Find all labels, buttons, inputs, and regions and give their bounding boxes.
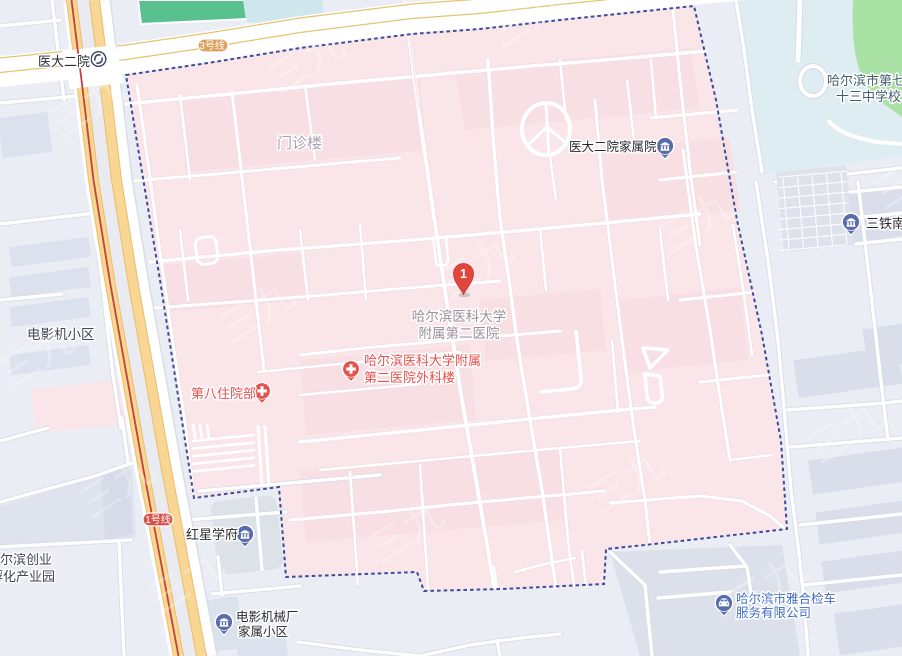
- svg-text:红星学府: 红星学府: [186, 527, 238, 542]
- svg-text:电影机械厂: 电影机械厂: [236, 609, 299, 624]
- svg-text:1号线: 1号线: [145, 513, 171, 526]
- svg-text:家属小区: 家属小区: [238, 624, 288, 639]
- svg-text:第二医院外科楼: 第二医院外科楼: [364, 370, 455, 385]
- svg-text:附属第二医院: 附属第二医院: [419, 325, 500, 341]
- svg-text:哈尔滨市第七: 哈尔滨市第七: [827, 73, 902, 88]
- svg-text:哈尔滨医科大学附属: 哈尔滨医科大学附属: [364, 353, 481, 368]
- svg-text:孵化产业园: 孵化产业园: [0, 569, 55, 584]
- svg-text:哈尔滨医科大学: 哈尔滨医科大学: [412, 309, 507, 324]
- svg-text:第八住院部: 第八住院部: [191, 386, 256, 401]
- svg-text:哈尔滨创业: 哈尔滨创业: [0, 552, 52, 567]
- svg-text:门诊楼: 门诊楼: [277, 135, 322, 152]
- svg-text:医大二院家属院: 医大二院家属院: [569, 139, 657, 154]
- svg-text:三铁南侧: 三铁南侧: [866, 216, 902, 231]
- svg-text:十三中学校: 十三中学校: [836, 89, 901, 104]
- svg-text:医大二院: 医大二院: [38, 54, 90, 69]
- svg-text:1: 1: [460, 267, 467, 281]
- svg-text:3号线: 3号线: [199, 39, 225, 52]
